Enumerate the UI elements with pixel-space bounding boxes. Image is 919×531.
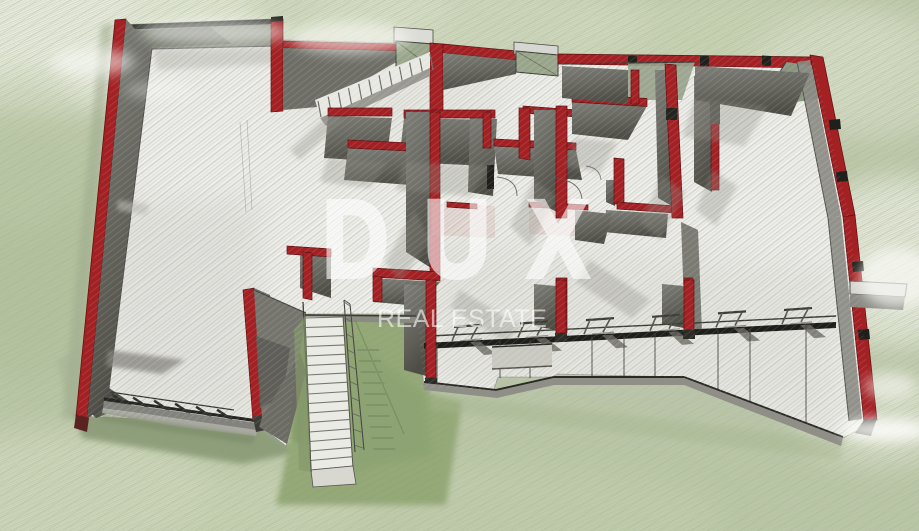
svg-text:REAL ESTATE: REAL ESTATE [377, 305, 547, 333]
svg-text:DUX: DUX [322, 177, 621, 300]
